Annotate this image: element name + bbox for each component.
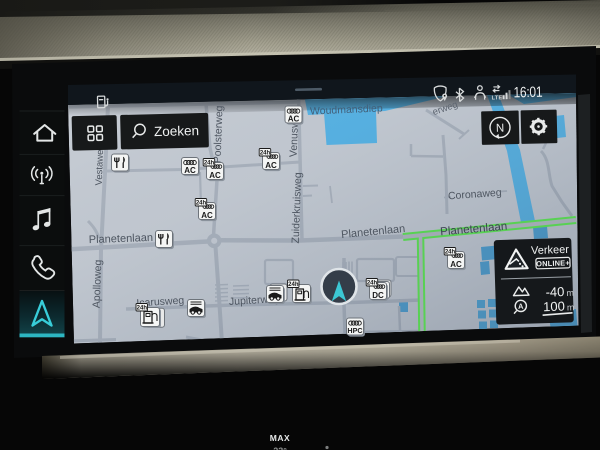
svg-text:Vestaweg: Vestaweg <box>94 144 106 186</box>
svg-text:Planetenlaan: Planetenlaan <box>89 232 154 246</box>
svg-text:ONLINE+: ONLINE+ <box>536 258 570 268</box>
svg-text:A: A <box>518 302 524 311</box>
svg-text:Apolloweg: Apolloweg <box>91 259 105 308</box>
svg-text:24h: 24h <box>288 282 299 288</box>
svg-text:Verkeer: Verkeer <box>531 244 570 257</box>
svg-text:-40: -40 <box>545 284 564 300</box>
svg-text:24h: 24h <box>196 200 207 206</box>
svg-text:24h: 24h <box>204 160 215 166</box>
svg-text:AC: AC <box>450 260 462 269</box>
svg-text:AC: AC <box>184 166 196 175</box>
svg-text:N: N <box>496 123 505 135</box>
svg-text:HPC: HPC <box>347 326 362 335</box>
svg-text:16:01: 16:01 <box>513 83 542 100</box>
svg-text:AC: AC <box>288 114 300 123</box>
svg-text:23°: 23° <box>273 446 287 450</box>
svg-text:MAX: MAX <box>270 433 290 443</box>
svg-text:m: m <box>567 302 575 312</box>
svg-text:100: 100 <box>543 299 565 315</box>
svg-text:Poolsterweg: Poolsterweg <box>211 105 225 163</box>
svg-text:24h: 24h <box>137 305 148 311</box>
svg-text:24h: 24h <box>445 249 456 255</box>
svg-text:DC: DC <box>372 291 384 300</box>
svg-text:24h: 24h <box>367 280 378 286</box>
svg-text:AC: AC <box>201 211 213 220</box>
svg-text:Zoeken: Zoeken <box>154 123 199 139</box>
svg-text:AC: AC <box>265 161 277 170</box>
svg-text:LTE: LTE <box>492 95 503 101</box>
svg-text:24h: 24h <box>260 150 271 156</box>
svg-text:m: m <box>566 288 574 298</box>
svg-text:Zuiderkruisweg: Zuiderkruisweg <box>290 172 304 244</box>
svg-text:AC: AC <box>209 171 221 180</box>
